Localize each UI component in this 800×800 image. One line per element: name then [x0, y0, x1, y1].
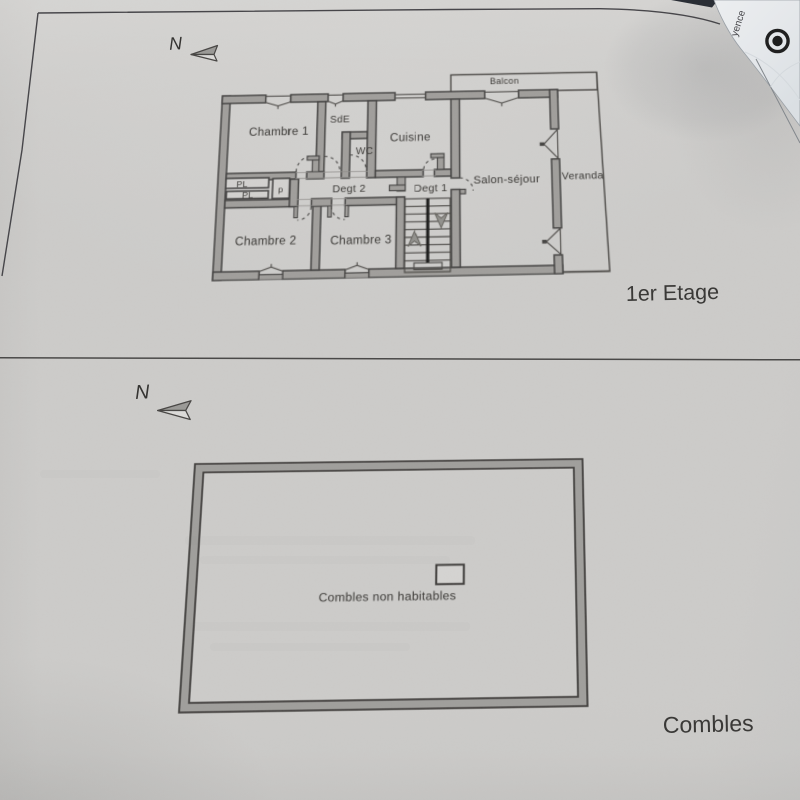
svg-text:1er Etage: 1er Etage — [626, 280, 720, 306]
svg-text:Combles: Combles — [663, 710, 754, 738]
svg-text:N: N — [169, 33, 184, 54]
svg-text:N: N — [135, 381, 151, 404]
